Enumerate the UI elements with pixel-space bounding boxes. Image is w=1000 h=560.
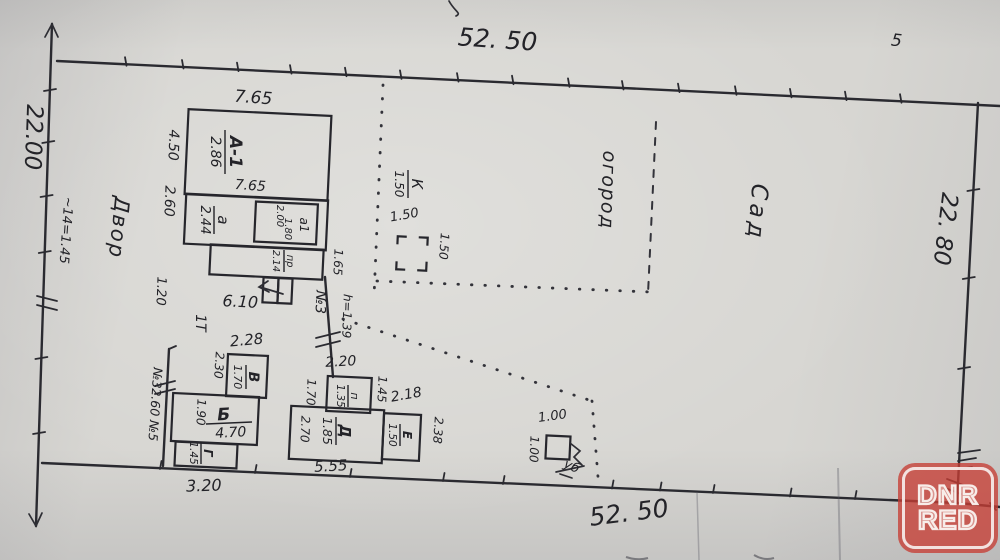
annex-fraction: а 2.44 (197, 206, 232, 235)
shed-v-label: В (245, 372, 261, 383)
annex-label: а (214, 215, 232, 224)
area-divider-lines (343, 85, 656, 477)
porch-fraction: пр 2.14 (270, 250, 295, 272)
dim-right: 22. 80 (928, 191, 963, 267)
shed-p-left-dim: 1.70 (304, 379, 319, 407)
paper-crease-1 (697, 492, 699, 560)
house-width-inner: 7.65 (234, 177, 266, 195)
house-a1-fraction: А-1 2.86 (207, 130, 245, 174)
room-a1-label: а1 (297, 218, 311, 233)
shed-e-fraction: Е 1.50 (386, 423, 414, 447)
paper-marks (449, 1, 840, 560)
fence-3-label: №3 (312, 289, 329, 314)
area-label-garden: огород (596, 150, 621, 230)
annex-area: 2.44 (197, 206, 212, 235)
house-width-top: 7.65 (234, 87, 273, 110)
porch-area: 2.14 (270, 250, 281, 272)
shed-v-left-dim: 2.30 (211, 351, 227, 379)
k-label: К (408, 179, 426, 191)
top-edge-partial-glyph (449, 1, 458, 16)
shed-b-area: 4.70 (215, 424, 247, 442)
sheds-group (171, 236, 584, 478)
shed-b-fraction: Б 4.70 (206, 405, 252, 442)
house-base-width: 6.10 (222, 291, 259, 312)
bottom-edge-partial-glyphs (626, 555, 774, 559)
fence-3-hatch (316, 332, 340, 347)
plan-drawing: 52. 50 22.00 22. 80 52. 50 ~14=1.45 5 Дв… (0, 0, 1000, 560)
garden-divider-dotted-vertical (374, 85, 383, 297)
outhouse-left-dim: 1.00 (527, 436, 542, 464)
scanned-plot-plan: 52. 50 22.00 22. 80 52. 50 ~14=1.45 5 Дв… (0, 0, 1000, 560)
outhouse-outline (545, 435, 570, 459)
gate-mark: 1Т (192, 314, 208, 333)
k-fraction: К 1.50 (392, 170, 426, 198)
house-gap-right: 1.65 (331, 249, 346, 276)
area-label-orchard: Сад (741, 183, 772, 243)
structure-k-outline (396, 236, 428, 270)
dim-left: 22.00 (19, 104, 47, 171)
shed-v-fraction: В 1.70 (231, 365, 261, 390)
shed-p-right-dim: 1.45 (375, 376, 390, 403)
paper-crease-2 (838, 468, 840, 560)
watermark-dnr-red: DNR RED (902, 467, 994, 549)
house-a1-label: А-1 (225, 134, 245, 168)
shed-d-label: Д (336, 423, 354, 437)
shed-g-area: 1.45 (187, 441, 199, 465)
boundary-left-line (36, 24, 52, 526)
shed-d-fraction: Д 1.85 (320, 417, 354, 445)
shed-d-bottom-dim: 5.55 (314, 456, 348, 476)
garden-divider-dotted-horizontal (377, 281, 651, 292)
shed-d-left-dim: 2.70 (298, 416, 313, 444)
shed-d-area: 1.85 (320, 417, 335, 445)
shed-p-label: п (348, 392, 361, 399)
left-fence-note: ~14=1.45 (56, 196, 76, 264)
orchard-divider-dashed (648, 122, 656, 294)
left-boundary-hatch (37, 296, 57, 310)
house-porch-outline (209, 244, 323, 279)
shed-p-top-dim: 2.20 (325, 353, 357, 371)
fence-left-line (163, 349, 169, 466)
house-height-annex: 2.60 (160, 185, 177, 217)
fence-left-note: №32.60 №5 (145, 366, 165, 442)
shed-b-label: Б (217, 405, 231, 426)
outhouse-top-dim: 1.00 (537, 407, 568, 426)
dim-top: 52. 50 (457, 22, 538, 56)
shed-v-top-dim: 2.28 (229, 330, 264, 351)
k-dim-h: 1.50 (436, 232, 452, 260)
porch-label: пр (284, 255, 295, 268)
porch-side-dim: 1.20 (152, 276, 168, 305)
k-area: 1.50 (392, 171, 406, 198)
shed-g-label: Г (201, 449, 215, 458)
house-a1-area: 2.86 (207, 136, 223, 167)
shed-e-area: 1.50 (386, 423, 398, 447)
shed-v-area: 1.70 (231, 365, 244, 390)
dim-bottom: 52. 50 (588, 493, 670, 531)
boundary-top-line (57, 61, 1000, 106)
boundary-right-line (957, 103, 978, 502)
shed-b-left-dim: 1.90 (194, 399, 209, 427)
shed-p-fraction: п 1.35 (334, 384, 361, 408)
watermark-line2: RED (918, 508, 978, 533)
shed-b-bottom-dim: 3.20 (186, 475, 222, 495)
k-dim-w: 1.50 (389, 206, 420, 226)
fence-3-height: h=1.39 (339, 294, 355, 339)
room-a1-height: 1.80 (282, 218, 293, 240)
stray-mark-5: 5 (890, 31, 903, 52)
shed-g-fraction: Г 1.45 (187, 441, 215, 465)
shed-e-label: Е (400, 431, 414, 440)
shed-p-area: 1.35 (334, 384, 346, 408)
shed-e-right-dim: 2.38 (430, 416, 446, 444)
shed-p-gap-dim: 2.18 (390, 384, 424, 405)
yard-divider-dotted-vertical (592, 401, 598, 477)
house-height-main: 4.50 (164, 129, 181, 161)
area-label-yard: Двор (104, 194, 135, 260)
